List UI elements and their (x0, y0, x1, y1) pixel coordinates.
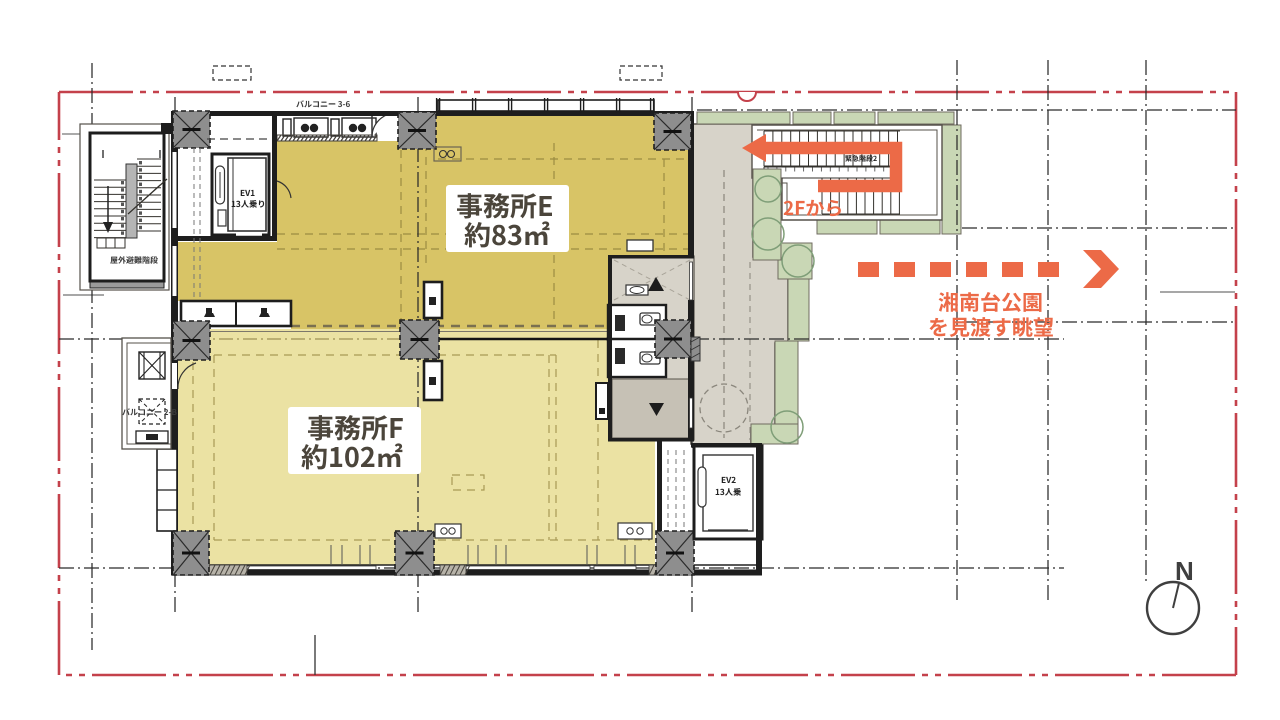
svg-text:N: N (1175, 556, 1194, 586)
